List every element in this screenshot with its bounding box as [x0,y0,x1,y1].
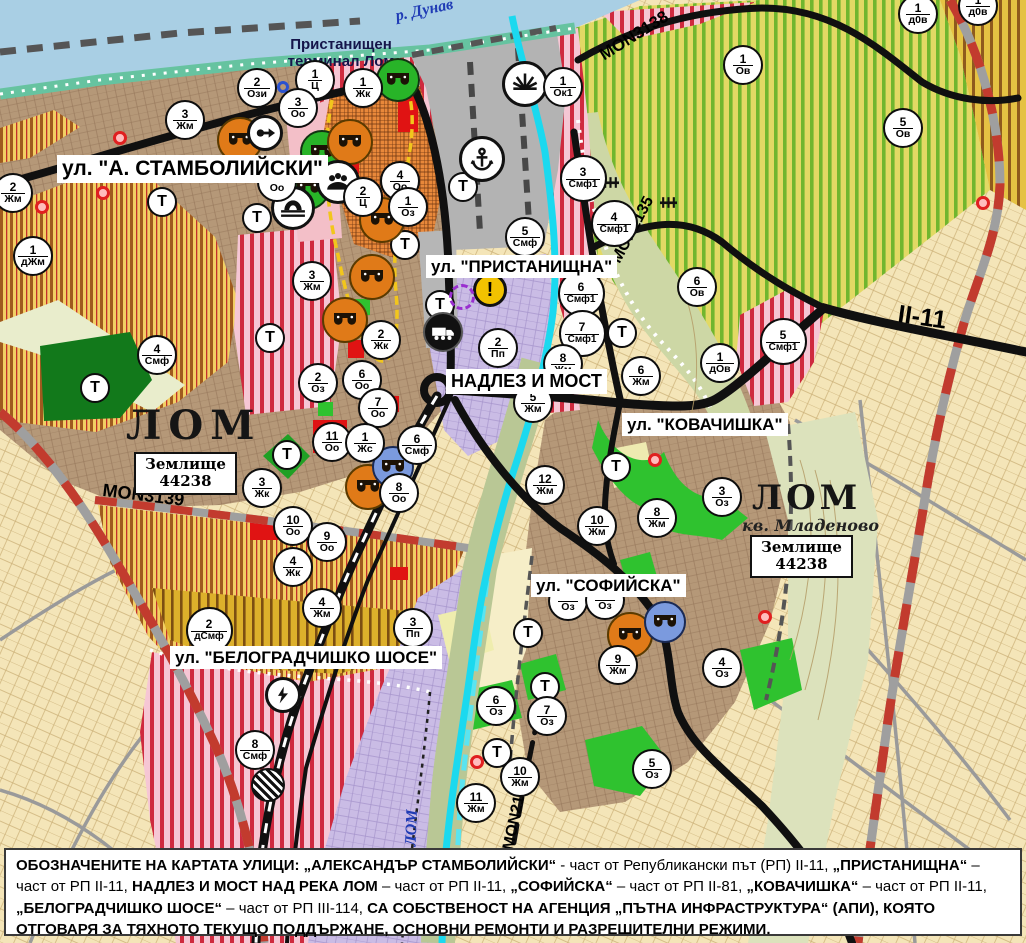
signal-dot-red [113,131,127,145]
legend-note-segment: „АЛЕКСАНДЪР СТАМБОЛИЙСКИ“ [304,857,556,874]
zone-marker: 7Оз [527,696,567,736]
zone-marker: 1Жк [343,68,383,108]
zone-marker: 1дОв [700,343,740,383]
road-number-label: II-11 [896,300,948,335]
culture-masks-icon-blue [644,601,686,643]
zone-marker: 3Жк [242,468,282,508]
legend-note-segment: „КОВАЧИШКА“ [746,878,858,895]
culture-masks-icon-green [376,58,420,102]
zone-marker: 2Пп [478,328,518,368]
street-label: ул. "ПРИСТАНИЩНА" [426,255,617,278]
zone-marker: 1Ов [723,45,763,85]
transport-marker: Т [80,373,110,403]
zone-marker: 6Ов [677,267,717,307]
legend-note-segment: „СОФИЙСКА“ [510,878,612,895]
signal-dot-red [35,200,49,214]
zone-marker: 1Жс [345,423,385,463]
power-lightning-icon [265,677,301,713]
signal-dot-red [758,610,772,624]
legend-note-segment: „ПРИСТАНИЩНА“ [833,857,968,874]
zoning-map-lom: Пристанищен терминал Лом р. Дунав р. ЛОМ… [0,0,1026,943]
zone-marker: 5Ов [883,108,923,148]
zone-marker: 9Жм [598,645,638,685]
land-plot-box-west: Землище 44238 [134,452,237,495]
zone-marker: 1д0в [958,0,998,26]
port-fan-icon [502,61,548,107]
city-label-lom-west: ЛОМ [126,402,262,449]
legend-note-segment: – част от РП II-11, [858,878,986,895]
zone-marker: 5Смф1 [760,318,807,365]
road-number-label: MON3138 [596,7,672,65]
zone-marker: 7Оо [358,388,398,428]
zone-marker: 8Оо [379,473,419,513]
street-label: НАДЛЕЗ И МОСТ [446,369,607,394]
zone-marker: 2Жм [0,173,33,213]
zone-marker: 11Жм [456,783,496,823]
city-label-lom-east: ЛОМ [752,478,861,518]
zone-marker: 9Оо [307,522,347,562]
transport-marker: Т [513,618,543,648]
transport-marker: Т [255,323,285,353]
zone-marker: 4Оз [702,648,742,688]
signal-dot-red [96,186,110,200]
zone-marker: 3Смф1 [560,155,607,202]
dashed-boundary-circle [449,284,475,310]
zone-marker: 2Ози [237,68,277,108]
zone-marker: 3Оо [278,88,318,128]
railway-crossing-icon [251,768,285,802]
legend-note-segment: – част от РП II-81, [613,878,747,895]
district-label-mladenovo: кв. Младеново [742,516,879,535]
street-label: ул. "БЕЛОГРАДЧИШКО ШОСЕ" [170,646,442,669]
signal-dot-red [976,196,990,210]
danube-river-label: р. Дунав [394,0,455,26]
zone-marker: 4Смф [137,335,177,375]
culture-masks-icon-orange [327,119,373,165]
signal-dot-red [470,755,484,769]
transport-marker: Т [147,187,177,217]
zone-marker: 6Оз [476,686,516,726]
signal-dot-red [648,453,662,467]
legend-note-segment: ОБОЗНАЧЕНИТЕ НА КАРТАТА УЛИЦИ: [16,857,304,874]
legend-note: ОБОЗНАЧЕНИТЕ НА КАРТАТА УЛИЦИ: „АЛЕКСАНД… [4,848,1022,936]
zone-marker: 1Ок1 [543,67,583,107]
legend-note-segment: НАДЛЕЗ И МОСТ НАД РЕКА ЛОМ [132,878,378,895]
annotation-layer: Пристанищен терминал Лом р. Дунав р. ЛОМ… [0,0,1026,943]
zone-marker: 2Оз [298,363,338,403]
legend-note-segment: - част от Републикански път (РП) II-11, [556,857,832,874]
zone-marker: 3Жм [292,261,332,301]
culture-masks-icon-orange [349,254,395,300]
anchor-icon [459,136,505,182]
street-label: ул. "КОВАЧИШКА" [622,413,788,436]
rail-segment-icon [660,195,677,213]
zone-marker: 4Жм [302,588,342,628]
zone-marker: 4Смф1 [591,200,638,247]
zone-marker: 3Жм [165,100,205,140]
land-plot-box-east: Землище 44238 [750,535,853,578]
transport-marker: Т [272,440,302,470]
zone-marker: 5Смф [505,217,545,257]
zone-marker: 6Жм [621,356,661,396]
zone-marker: 8Смф [235,730,275,770]
zone-marker: 1дЖм [13,236,53,276]
zone-marker: 1Оз [388,187,428,227]
zone-marker: 1д0в [898,0,938,34]
zone-marker: 10Жм [500,757,540,797]
transport-marker: Т [601,452,631,482]
zone-marker: 3Пп [393,608,433,648]
legend-note-segment: „БЕЛОГРАДЧИШКО ШОСЕ“ [16,900,222,917]
zone-marker: 6Смф [397,425,437,465]
street-label: ул. "СОФИЙСКА" [531,574,686,597]
zone-marker: 3Оз [702,477,742,517]
zone-marker: 12Жм [525,465,565,505]
poi-arrow-icon [247,115,283,151]
zone-marker: 5Оз [632,749,672,789]
zone-marker: 2Ц [343,177,383,217]
zone-marker: 2Жк [361,320,401,360]
zone-marker: 4Жк [273,547,313,587]
legend-note-segment: – част от РП II-11, [378,878,511,895]
transport-marker: Т [242,203,272,233]
legend-note-segment: – част от РП III-114, [222,900,367,917]
street-label: ул. "А. СТАМБОЛИЙСКИ" [57,155,328,183]
zone-marker: 10Жм [577,506,617,546]
truck-terminal-icon [423,312,463,352]
zone-marker: 8Жм [637,498,677,538]
transport-marker: Т [607,318,637,348]
